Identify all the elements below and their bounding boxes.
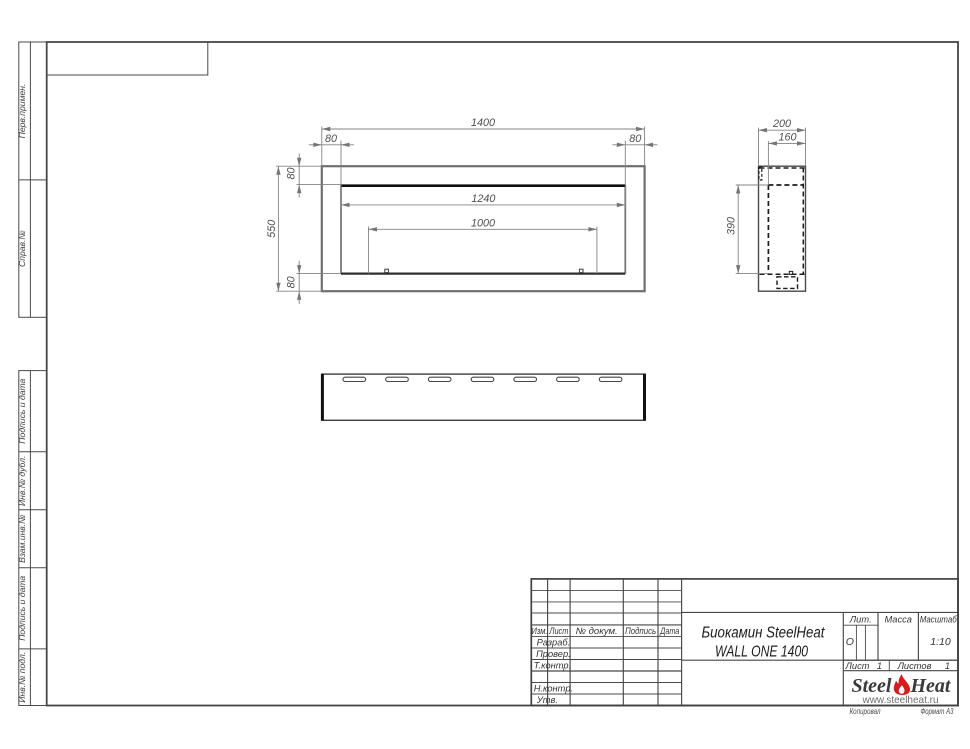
svg-text:Подпись и дата: Подпись и дата <box>17 378 27 443</box>
svg-text:Heat: Heat <box>910 675 952 697</box>
svg-text:Лист: Лист <box>549 626 569 636</box>
svg-text:Подпись и дата: Подпись и дата <box>17 576 27 641</box>
svg-text:80: 80 <box>629 133 641 145</box>
svg-text:WALL ONE 1400: WALL ONE 1400 <box>715 644 808 661</box>
svg-text:Провер.: Провер. <box>536 649 571 659</box>
svg-text:Steel: Steel <box>852 675 892 697</box>
svg-text:О: О <box>846 636 854 648</box>
svg-text:Инв.№ дубл.: Инв.№ дубл. <box>17 456 27 506</box>
svg-text:Масса: Масса <box>884 614 912 624</box>
svg-text:Утв.: Утв. <box>536 695 558 705</box>
svg-text:Масштаб: Масштаб <box>920 614 958 624</box>
svg-text:1400: 1400 <box>471 117 495 129</box>
svg-text:1: 1 <box>877 661 882 671</box>
svg-text:390: 390 <box>726 217 738 235</box>
svg-text:Биокамин SteelHeat: Биокамин SteelHeat <box>702 625 826 642</box>
svg-text:80: 80 <box>325 133 337 145</box>
svg-text:Дата: Дата <box>660 626 680 636</box>
svg-text:Н.контр.: Н.контр. <box>534 684 573 694</box>
svg-text:Листов: Листов <box>897 661 932 671</box>
svg-text:80: 80 <box>286 167 298 179</box>
svg-text:Инв.№ подл.: Инв.№ подл. <box>17 652 27 703</box>
svg-text:80: 80 <box>286 276 298 288</box>
svg-text:Разраб.: Разраб. <box>537 638 571 648</box>
svg-text:Подпись: Подпись <box>625 626 656 636</box>
svg-text:1240: 1240 <box>471 193 495 205</box>
svg-text:Формат А3: Формат А3 <box>921 706 954 716</box>
svg-text:1000: 1000 <box>471 217 495 229</box>
svg-text:Копировал: Копировал <box>850 706 881 716</box>
svg-text:Лист: Лист <box>845 661 870 671</box>
svg-text:Перв.примен.: Перв.примен. <box>17 84 27 139</box>
svg-text:Взам.инв.№: Взам.инв.№ <box>17 515 27 563</box>
svg-text:www.steelheat.ru: www.steelheat.ru <box>862 695 939 706</box>
svg-text:Лит.: Лит. <box>849 614 872 624</box>
svg-text:1: 1 <box>945 661 950 671</box>
svg-text:Справ.№: Справ.№ <box>17 230 27 267</box>
svg-text:Т.контр.: Т.контр. <box>534 661 572 671</box>
svg-text:1:10: 1:10 <box>930 636 951 648</box>
svg-text:№ докум.: № докум. <box>576 626 618 636</box>
svg-text:Изм.: Изм. <box>532 626 548 636</box>
svg-text:550: 550 <box>266 220 278 238</box>
svg-text:200: 200 <box>772 118 791 130</box>
svg-text:160: 160 <box>778 131 796 143</box>
